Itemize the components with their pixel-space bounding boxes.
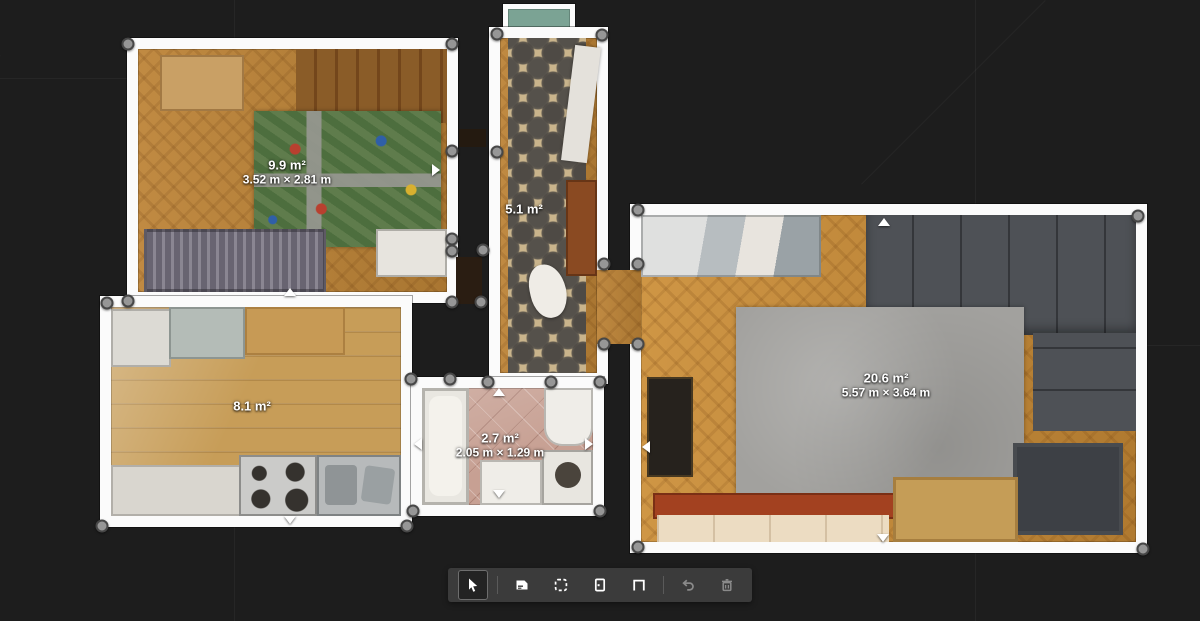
sink [317,455,401,516]
play-rug [254,111,441,247]
washing-machine [542,450,593,505]
corner-handle[interactable] [446,245,459,258]
select-tool-button[interactable] [458,570,488,600]
cabinet-left [111,309,171,367]
corner-handle[interactable] [101,297,114,310]
corner-handle[interactable] [594,505,607,518]
desk [566,180,597,276]
door-leaf [459,129,486,147]
wall-arrow-icon[interactable] [493,490,505,498]
door-icon [591,576,609,594]
armchair [1013,443,1123,535]
sink-bathroom [480,460,542,505]
corner-handle[interactable] [446,38,459,51]
wall-arrow-icon[interactable] [877,534,889,542]
corner-handle[interactable] [122,295,135,308]
stove [239,455,317,516]
undo-button[interactable] [673,570,703,600]
sink-basin [325,465,357,505]
corner-handle[interactable] [491,28,504,41]
corner-handle[interactable] [407,505,420,518]
corner-handle[interactable] [594,376,607,389]
room-kids[interactable] [127,38,458,303]
undo-icon [679,576,697,594]
corner-handle[interactable] [632,204,645,217]
corner-handle[interactable] [122,38,135,51]
room-hallway[interactable] [489,27,608,384]
add-room-tool-button[interactable] [507,570,537,600]
dresser [160,55,244,111]
bathtub [422,388,469,505]
wardrobe-living [657,515,889,542]
corner-handle[interactable] [1137,543,1150,556]
tv-stand [647,377,693,477]
add-room-icon [513,576,531,594]
corner-handle[interactable] [632,541,645,554]
counter-top [245,307,345,355]
toolbar-divider [663,576,664,594]
corner-handle[interactable] [632,258,645,271]
corner-handle[interactable] [446,296,459,309]
wall-arrow-icon[interactable] [432,164,440,176]
editor-toolbar [448,568,752,602]
counter-bottom [111,465,243,516]
room-bathroom[interactable] [411,377,604,516]
corner-handle[interactable] [482,376,495,389]
delete-button[interactable] [712,570,742,600]
corner-handle[interactable] [444,373,457,386]
wall-arrow-icon[interactable] [642,441,650,453]
corner-handle[interactable] [96,520,109,533]
room-living[interactable] [630,204,1147,553]
dashed-region-icon [552,576,570,594]
wall-arrow-icon[interactable] [878,218,890,226]
wall-arrow-icon[interactable] [585,438,593,450]
corner-handle[interactable] [596,29,609,42]
corner-handle[interactable] [632,338,645,351]
add-door-tool-button[interactable] [585,570,615,600]
cursor-icon [464,576,482,594]
sofa [144,229,326,292]
corner-sofa-chaise [1033,333,1136,431]
crib [376,229,447,277]
corner-handle[interactable] [401,520,414,533]
corner-handle[interactable] [446,145,459,158]
add-opening-tool-button[interactable] [624,570,654,600]
corner-handle[interactable] [491,146,504,159]
corner-handle[interactable] [405,373,418,386]
corner-handle[interactable] [545,376,558,389]
bathtub-basin [429,396,462,496]
corner-handle[interactable] [598,338,611,351]
appliance [169,307,245,359]
draw-region-tool-button[interactable] [546,570,576,600]
doorway-hall-living [597,270,641,344]
corner-handle[interactable] [598,258,611,271]
toolbar-divider [497,576,498,594]
wall-arrow-icon[interactable] [414,438,422,450]
corner-handle[interactable] [475,296,488,309]
corner-handle[interactable] [1132,210,1145,223]
mirror-shelf [641,215,821,277]
wall-arrow-icon[interactable] [493,388,505,396]
wall-arrow-icon[interactable] [284,288,296,296]
wall-arrow-icon[interactable] [284,516,296,524]
sink-basin [361,465,396,505]
corner-handle[interactable] [477,244,490,257]
table [893,477,1018,542]
washer-door [555,462,581,488]
room-kitchen[interactable] [100,296,412,527]
trash-icon [718,576,736,594]
opening-icon [630,576,648,594]
floor-plan: 9.9 m² 3.52 m × 2.81 m 5.1 m² 8.1 m² 2.7… [0,0,1200,621]
